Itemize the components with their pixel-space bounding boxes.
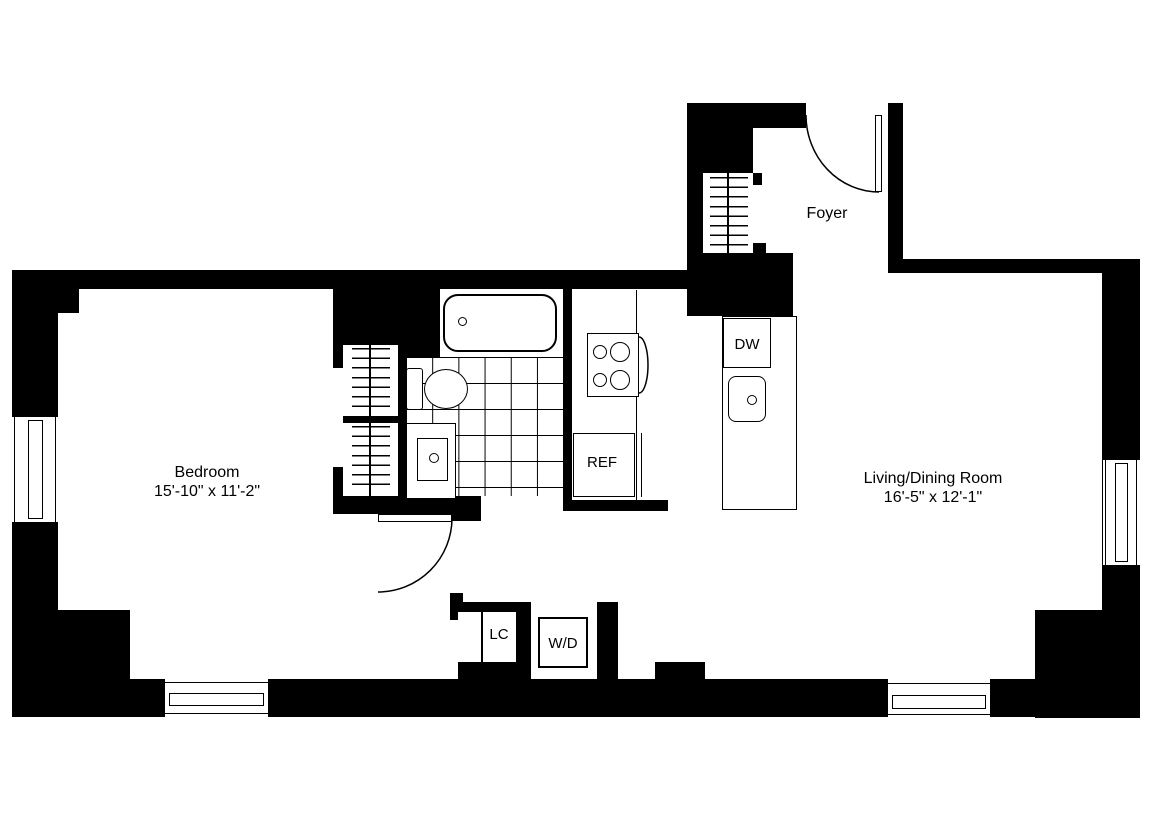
refrigerator-door-line [636, 433, 642, 497]
wall-bottom-left-block [12, 610, 130, 680]
living-bottom-window [888, 679, 990, 717]
living-dining-label-name: Living/Dining Room [864, 469, 1003, 488]
wall-closet-upper-stub [333, 345, 343, 368]
bathtub-drain-icon [458, 317, 467, 326]
dishwasher-label: DW [735, 337, 760, 352]
window-sash [169, 693, 264, 706]
living-right-window [1103, 460, 1140, 565]
window-edge-line [1105, 460, 1106, 565]
oven-door-arc [639, 337, 648, 393]
island-sink-drain-icon [747, 395, 757, 405]
window-edge-line [1136, 460, 1137, 565]
stove-burner-icon [610, 342, 630, 362]
linen-closet-door-line [481, 612, 483, 662]
window-sash [892, 695, 986, 709]
bedroom-label-dimensions: 15'-10" x 11'-2" [154, 482, 260, 501]
wall-bath-bottom-chunk [452, 514, 481, 521]
stove-burner-icon [593, 373, 607, 387]
bedroom-label-name: Bedroom [154, 463, 260, 482]
wall-kitchen-bottom [563, 500, 668, 511]
bedroom-door-swing-arc [378, 518, 452, 592]
wall-left-step [58, 288, 79, 313]
window-edge-line [55, 417, 56, 522]
wall-kitchen-left [563, 288, 572, 500]
closet-rod-icon [369, 423, 371, 496]
wall-lc-bottom [458, 662, 531, 680]
window-edge-line [165, 713, 268, 714]
refrigerator-label: REF [587, 455, 617, 470]
wall-foyer-closet-stub-top [753, 173, 762, 185]
wall-top-main [12, 270, 705, 289]
bedroom-door-leaf [378, 514, 452, 522]
stove-burner-icon [610, 370, 630, 390]
stove-burner-icon [593, 345, 607, 359]
toilet-bowl [424, 369, 468, 409]
washer-dryer-label: W/D [548, 636, 577, 651]
closet-shelves-icon [710, 177, 748, 249]
bedroom-left-window [12, 417, 58, 522]
wall-wd-right [597, 602, 618, 682]
wall-bath-upper-mass [333, 288, 440, 345]
closet-rod-icon [727, 173, 729, 253]
wall-tub-left [398, 345, 440, 357]
window-edge-line [14, 417, 15, 522]
wall-foyer-top [687, 103, 806, 128]
bedroom-label: Bedroom 15'-10" x 11'-2" [154, 463, 260, 501]
living-dining-label-dimensions: 16'-5" x 12'-1" [864, 488, 1003, 507]
entry-door-swing-arc [806, 115, 879, 192]
foyer-label: Foyer [807, 204, 848, 223]
vanity-drain-icon [429, 453, 439, 463]
bedroom-closet-bottom [343, 423, 398, 496]
linen-closet-label: LC [489, 627, 508, 642]
closet-rod-icon [369, 345, 371, 416]
bedroom-bottom-window [165, 679, 268, 717]
window-sash [28, 420, 43, 519]
wall-foyer-right [888, 103, 903, 273]
window-sash [1115, 463, 1128, 562]
toilet-tank [406, 368, 423, 410]
closet-shelves-icon [352, 426, 390, 493]
living-dining-label: Living/Dining Room 16'-5" x 12'-1" [864, 469, 1003, 507]
window-edge-line [888, 714, 990, 715]
wall-bottom-step [655, 662, 705, 680]
wall-closet-divider [343, 416, 398, 423]
floorplan-canvas: Foyer Bedroom 15'-10" x 11'-2" Living/Di… [0, 0, 1151, 825]
bedroom-closet-top [343, 345, 398, 416]
foyer-closet [703, 173, 753, 253]
entry-door-leaf [875, 115, 882, 192]
closet-shelves-icon [352, 348, 390, 413]
wall-bottom-right-step [1035, 610, 1140, 718]
window-edge-line [888, 683, 990, 684]
wall-foyer-bottom-block [687, 253, 793, 316]
window-edge-line [165, 682, 268, 683]
